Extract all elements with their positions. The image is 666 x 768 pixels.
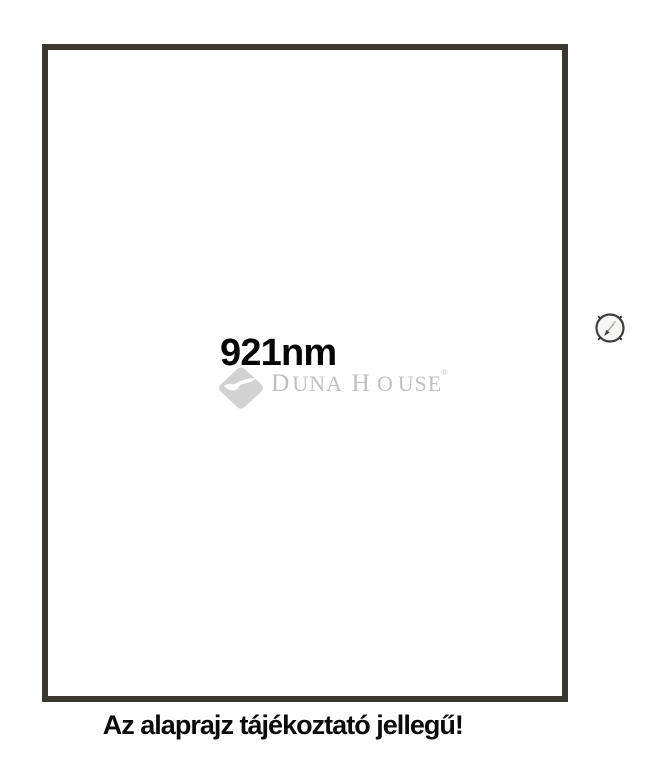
svg-text:U: U: [397, 372, 413, 396]
svg-text:N: N: [309, 372, 325, 396]
svg-text:D: D: [271, 368, 289, 397]
svg-text:H: H: [351, 368, 369, 397]
svg-text:E: E: [427, 372, 440, 396]
svg-text:A: A: [326, 372, 342, 396]
svg-text:U: U: [292, 372, 308, 396]
svg-text:O: O: [377, 372, 393, 396]
svg-text:®: ®: [441, 367, 448, 377]
svg-text:S: S: [414, 372, 426, 396]
